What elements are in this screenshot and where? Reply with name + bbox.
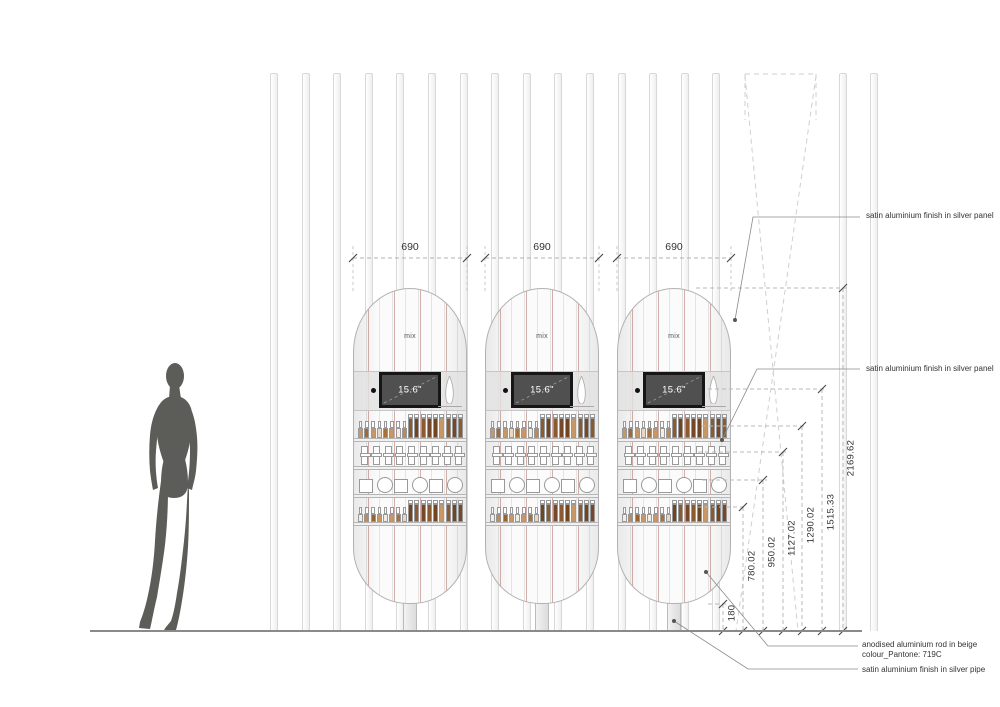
- shelf: [486, 522, 598, 526]
- product-bottle: [722, 500, 727, 522]
- product-compact: [526, 479, 540, 493]
- jar-lid: [492, 453, 503, 457]
- jar-lid: [515, 453, 526, 457]
- jar-lid: [624, 453, 635, 457]
- bottle-cap: [535, 507, 539, 514]
- product-bottle: [710, 500, 715, 522]
- product-bottle: [660, 507, 665, 522]
- width-dimension-label: 690: [665, 241, 683, 253]
- jar-lid: [586, 453, 597, 457]
- jar-lid: [395, 453, 406, 457]
- product-bottle: [553, 500, 558, 522]
- product-bottle: [490, 421, 495, 438]
- product-row: [622, 413, 728, 438]
- bottle-body: [590, 504, 595, 522]
- product-jar: [649, 446, 656, 465]
- product-bottle: [672, 500, 677, 522]
- unit-capsule: mix15.6": [353, 288, 467, 604]
- product-bottle: [377, 421, 382, 438]
- product-bottle: [559, 414, 564, 438]
- product-bottle: [414, 500, 419, 522]
- bottle-body: [697, 504, 702, 522]
- bottle-cap: [384, 507, 388, 514]
- bottle-cap: [623, 507, 627, 514]
- bottle-body: [458, 504, 463, 522]
- product-jar: [719, 446, 726, 465]
- bottle-cap: [635, 421, 639, 428]
- product-bottle: [358, 421, 363, 438]
- product-row: [490, 499, 596, 522]
- height-dimension-label: 1290.02: [806, 507, 817, 543]
- bottle-cap: [667, 507, 671, 514]
- product-jar: [361, 446, 368, 465]
- height-dimension-label: 950.02: [767, 537, 778, 568]
- screen-size-label: 15.6": [646, 385, 702, 396]
- product-bottle: [421, 500, 426, 522]
- product-bottle: [452, 414, 457, 438]
- product-jar: [696, 446, 703, 465]
- product-bottle: [703, 414, 708, 438]
- bottle-body: [666, 428, 671, 438]
- bottle-body: [439, 418, 444, 438]
- bottle-cap: [497, 507, 501, 514]
- bottle-body: [540, 418, 545, 438]
- bottle-body: [402, 514, 407, 522]
- bottle-body: [641, 428, 646, 438]
- product-bottle: [528, 507, 533, 522]
- product-bottle: [635, 507, 640, 522]
- bottle-body: [635, 428, 640, 438]
- bottle-body: [534, 428, 539, 438]
- product-bottle: [571, 500, 576, 522]
- bottle-cap: [667, 421, 671, 428]
- annotation-rod: anodised aluminium rod in beige colour_P…: [862, 640, 977, 659]
- product-bottle: [628, 507, 633, 522]
- bottle-body: [377, 428, 382, 438]
- bottle-body: [396, 428, 401, 438]
- jar-lid: [503, 453, 514, 457]
- mix-label: mix: [486, 333, 598, 340]
- power-dot: [371, 388, 376, 393]
- product-compact: [544, 477, 560, 493]
- jar-lid: [551, 453, 562, 457]
- product-bottle: [685, 414, 690, 438]
- product-bottle: [660, 421, 665, 438]
- jar-lid: [539, 453, 550, 457]
- product-bottle: [622, 421, 627, 438]
- product-bottle: [521, 421, 526, 438]
- bottle-body: [716, 504, 721, 522]
- product-bottle: [458, 500, 463, 522]
- product-compact: [579, 477, 595, 493]
- bottle-cap: [403, 421, 407, 428]
- bottle-cap: [384, 421, 388, 428]
- jar-lid: [527, 453, 538, 457]
- mix-label: mix: [618, 333, 730, 340]
- product-bottle: [452, 500, 457, 522]
- product-bottle: [371, 421, 376, 438]
- screen-size-label: 15.6": [382, 385, 438, 396]
- product-bottle: [584, 500, 589, 522]
- product-bottle: [540, 500, 545, 522]
- product-bottle: [641, 507, 646, 522]
- bottle-body: [421, 504, 426, 522]
- bottle-body: [528, 428, 533, 438]
- leaf-shelf-line: [702, 406, 726, 407]
- screen: 15.6": [511, 372, 573, 408]
- bottle-cap: [660, 421, 664, 428]
- product-jar: [385, 446, 392, 465]
- bottle-body: [578, 504, 583, 522]
- product-bottle: [559, 500, 564, 522]
- bottle-body: [584, 418, 589, 438]
- bottle-cap: [510, 421, 514, 428]
- bottle-cap: [642, 507, 646, 514]
- jar-lid: [718, 453, 729, 457]
- bottle-body: [553, 504, 558, 522]
- product-bottle: [691, 500, 696, 522]
- bottle-body: [685, 418, 690, 438]
- shelf: [618, 522, 730, 526]
- bottle-body: [710, 418, 715, 438]
- product-bottle: [364, 507, 369, 522]
- bottle-body: [691, 504, 696, 522]
- bottle-body: [710, 504, 715, 522]
- bottle-body: [446, 418, 451, 438]
- annotation-panel-top: satin aluminium finish in silver panel: [866, 211, 994, 221]
- bottle-body: [496, 428, 501, 438]
- product-jar: [637, 446, 644, 465]
- bottle-body: [503, 514, 508, 522]
- leaf-decor: [576, 376, 587, 404]
- screen: 15.6": [379, 372, 441, 408]
- bottle-cap: [528, 507, 532, 514]
- bottle-body: [408, 504, 413, 522]
- bottle-cap: [516, 421, 520, 428]
- product-bottle: [628, 421, 633, 438]
- product-bottle: [408, 414, 413, 438]
- bottle-body: [565, 418, 570, 438]
- bottle-body: [396, 514, 401, 522]
- jar-lid: [430, 453, 441, 457]
- shelf: [354, 522, 466, 526]
- product-row: [622, 499, 728, 522]
- annotation-panel-mid: satin aluminium finish in silver panel: [866, 364, 994, 374]
- product-bottle: [439, 414, 444, 438]
- bottle-cap: [654, 421, 658, 428]
- product-jar: [684, 446, 691, 465]
- bottle-body: [628, 428, 633, 438]
- bottle-body: [697, 418, 702, 438]
- jar-lid: [407, 453, 418, 457]
- product-bottle: [571, 414, 576, 438]
- bottle-body: [414, 504, 419, 522]
- product-bottle: [421, 414, 426, 438]
- bottle-cap: [497, 421, 501, 428]
- bottle-cap: [359, 421, 363, 428]
- product-jar: [373, 446, 380, 465]
- leaf-shelf-line: [438, 406, 462, 407]
- bottle-body: [678, 504, 683, 522]
- bottle-cap: [378, 507, 382, 514]
- product-bottle: [458, 414, 463, 438]
- product-bottle: [496, 421, 501, 438]
- product-jar: [505, 446, 512, 465]
- width-dimension-label: 690: [401, 241, 419, 253]
- product-row: [490, 413, 596, 438]
- bottle-cap: [629, 507, 633, 514]
- bottle-body: [653, 428, 658, 438]
- product-bottle: [402, 507, 407, 522]
- jar-lid: [454, 453, 465, 457]
- product-bottle: [641, 421, 646, 438]
- jar-lid: [683, 453, 694, 457]
- product-bottle: [546, 414, 551, 438]
- product-row: [490, 442, 596, 466]
- bottle-cap: [660, 507, 664, 514]
- shelf: [618, 494, 730, 498]
- bottle-cap: [635, 507, 639, 514]
- jar-lid: [706, 453, 717, 457]
- product-bottle: [565, 414, 570, 438]
- product-jar: [564, 446, 571, 465]
- product-bottle: [490, 507, 495, 522]
- product-compact: [711, 477, 727, 493]
- bottle-cap: [522, 421, 526, 428]
- bottle-body: [641, 514, 646, 522]
- bottle-body: [546, 504, 551, 522]
- unit-capsule: mix15.6": [617, 288, 731, 604]
- bottle-cap: [510, 507, 514, 514]
- annotation-rod-line2: colour_Pantone: 719C: [862, 650, 977, 660]
- elevation-drawing: mix15.6"mix15.6"mix15.6" 690690690180780…: [0, 0, 1000, 707]
- bottle-body: [553, 418, 558, 438]
- product-jar: [528, 446, 535, 465]
- bottle-body: [559, 504, 564, 522]
- bottle-cap: [623, 421, 627, 428]
- bottle-body: [590, 418, 595, 438]
- bottle-cap: [535, 421, 539, 428]
- bottle-body: [458, 418, 463, 438]
- bottle-body: [584, 504, 589, 522]
- height-dimension-label: 180: [727, 605, 738, 622]
- bottle-body: [496, 514, 501, 522]
- product-bottle: [635, 421, 640, 438]
- bottle-body: [528, 514, 533, 522]
- product-bottle: [371, 507, 376, 522]
- bottle-cap: [503, 507, 507, 514]
- bottle-cap: [396, 421, 400, 428]
- background-rod: [333, 73, 341, 631]
- bottle-cap: [371, 507, 375, 514]
- jar-lid: [659, 453, 670, 457]
- bottle-body: [716, 418, 721, 438]
- product-bottle: [590, 414, 595, 438]
- product-jar: [625, 446, 632, 465]
- bottle-body: [414, 418, 419, 438]
- product-bottle: [446, 500, 451, 522]
- leaf-decor: [708, 376, 719, 404]
- product-jar: [517, 446, 524, 465]
- bottle-cap: [528, 421, 532, 428]
- product-bottle: [439, 500, 444, 522]
- product-compact: [447, 477, 463, 493]
- product-bottle: [389, 507, 394, 522]
- bottle-body: [691, 418, 696, 438]
- product-jar: [432, 446, 439, 465]
- height-dimension-label: 2169.62: [846, 440, 857, 476]
- jar-lid: [360, 453, 371, 457]
- bottle-body: [703, 504, 708, 522]
- bottle-body: [509, 514, 514, 522]
- product-row: [358, 471, 464, 494]
- annotation-pipe: satin aluminium finish in silver pipe: [862, 665, 985, 675]
- product-bottle: [647, 507, 652, 522]
- product-compact: [623, 479, 637, 493]
- bottle-body: [622, 514, 627, 522]
- product-bottle: [427, 500, 432, 522]
- bottle-body: [559, 418, 564, 438]
- bottle-body: [515, 514, 520, 522]
- shelf: [486, 494, 598, 498]
- bottle-cap: [516, 507, 520, 514]
- bottle-body: [515, 428, 520, 438]
- bottle-cap: [642, 421, 646, 428]
- product-jar: [493, 446, 500, 465]
- bottle-cap: [648, 507, 652, 514]
- jar-lid: [419, 453, 430, 457]
- bottle-cap: [522, 507, 526, 514]
- product-bottle: [716, 500, 721, 522]
- product-row: [622, 442, 728, 466]
- bottle-body: [647, 428, 652, 438]
- product-bottle: [540, 414, 545, 438]
- product-bottle: [584, 414, 589, 438]
- product-bottle: [515, 421, 520, 438]
- product-bottle: [622, 507, 627, 522]
- product-jar: [444, 446, 451, 465]
- product-bottle: [496, 507, 501, 522]
- bottle-body: [622, 428, 627, 438]
- bottle-body: [571, 418, 576, 438]
- product-bottle: [503, 507, 508, 522]
- product-bottle: [716, 414, 721, 438]
- bottle-body: [421, 418, 426, 438]
- bottle-body: [666, 514, 671, 522]
- bottle-body: [628, 514, 633, 522]
- bottle-cap: [648, 421, 652, 428]
- bottle-cap: [359, 507, 363, 514]
- product-bottle: [383, 421, 388, 438]
- bottle-cap: [390, 507, 394, 514]
- bottle-body: [383, 514, 388, 522]
- product-bottle: [666, 421, 671, 438]
- screen-size-label: 15.6": [514, 385, 570, 396]
- product-jar: [396, 446, 403, 465]
- bottle-body: [565, 504, 570, 522]
- bottle-cap: [371, 421, 375, 428]
- bottle-body: [452, 504, 457, 522]
- product-bottle: [672, 414, 677, 438]
- bottle-body: [540, 504, 545, 522]
- mix-label: mix: [354, 333, 466, 340]
- product-bottle: [685, 500, 690, 522]
- bottle-body: [490, 428, 495, 438]
- shelf: [618, 466, 730, 470]
- product-bottle: [666, 507, 671, 522]
- product-bottle: [653, 421, 658, 438]
- product-compact: [412, 477, 428, 493]
- product-bottle: [358, 507, 363, 522]
- bottle-body: [534, 514, 539, 522]
- bottle-body: [635, 514, 640, 522]
- product-bottle: [678, 414, 683, 438]
- bottle-body: [364, 514, 369, 522]
- product-bottle: [678, 500, 683, 522]
- unit-capsule: mix15.6": [485, 288, 599, 604]
- jar-lid: [371, 453, 382, 457]
- bottle-body: [521, 428, 526, 438]
- product-bottle: [553, 414, 558, 438]
- bottle-cap: [491, 507, 495, 514]
- product-bottle: [578, 500, 583, 522]
- product-jar: [587, 446, 594, 465]
- product-bottle: [647, 421, 652, 438]
- product-bottle: [402, 421, 407, 438]
- bottle-body: [364, 428, 369, 438]
- bottle-body: [389, 514, 394, 522]
- product-jar: [672, 446, 679, 465]
- screen: 15.6": [643, 372, 705, 408]
- leaf-shelf-line: [570, 406, 594, 407]
- bottle-cap: [365, 421, 369, 428]
- product-compact: [641, 477, 657, 493]
- product-bottle: [446, 414, 451, 438]
- product-bottle: [528, 421, 533, 438]
- product-jar: [408, 446, 415, 465]
- product-bottle: [546, 500, 551, 522]
- bottle-cap: [390, 421, 394, 428]
- bottle-body: [433, 504, 438, 522]
- power-dot: [503, 388, 508, 393]
- product-row: [358, 413, 464, 438]
- jar-lid: [442, 453, 453, 457]
- product-compact: [658, 479, 672, 493]
- bottle-cap: [396, 507, 400, 514]
- background-rod: [870, 73, 878, 631]
- bottle-body: [358, 514, 363, 522]
- product-compact: [693, 479, 707, 493]
- bottle-body: [571, 504, 576, 522]
- product-compact: [429, 479, 443, 493]
- product-row: [490, 471, 596, 494]
- bottle-body: [672, 504, 677, 522]
- product-bottle: [534, 421, 539, 438]
- bottle-body: [389, 428, 394, 438]
- shelf: [354, 466, 466, 470]
- product-bottle: [515, 507, 520, 522]
- product-bottle: [697, 414, 702, 438]
- bottle-body: [452, 418, 457, 438]
- product-bottle: [414, 414, 419, 438]
- bottle-cap: [403, 507, 407, 514]
- bottle-cap: [365, 507, 369, 514]
- width-dimension-label: 690: [533, 241, 551, 253]
- jar-lid: [574, 453, 585, 457]
- height-dimension-label: 1127.02: [787, 520, 798, 556]
- bottle-body: [383, 428, 388, 438]
- bottle-body: [546, 418, 551, 438]
